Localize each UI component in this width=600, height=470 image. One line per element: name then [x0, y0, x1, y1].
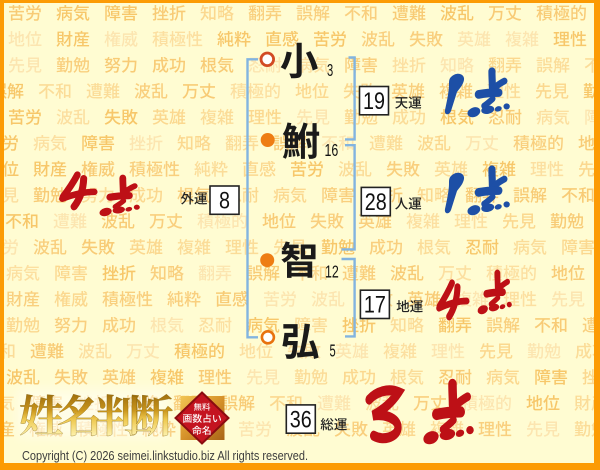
svg-text:19: 19: [363, 88, 385, 115]
svg-text:12: 12: [325, 262, 339, 282]
svg-text:36: 36: [290, 406, 312, 433]
svg-text:16: 16: [325, 140, 339, 160]
svg-text:5: 5: [330, 341, 336, 361]
svg-text:8: 8: [219, 187, 230, 214]
svg-text:Copyright (C) 2026 seimei.link: Copyright (C) 2026 seimei.linkstudio.biz…: [22, 449, 308, 463]
svg-text:3: 3: [327, 60, 333, 80]
svg-text:17: 17: [364, 292, 386, 319]
svg-text:28: 28: [365, 189, 387, 216]
